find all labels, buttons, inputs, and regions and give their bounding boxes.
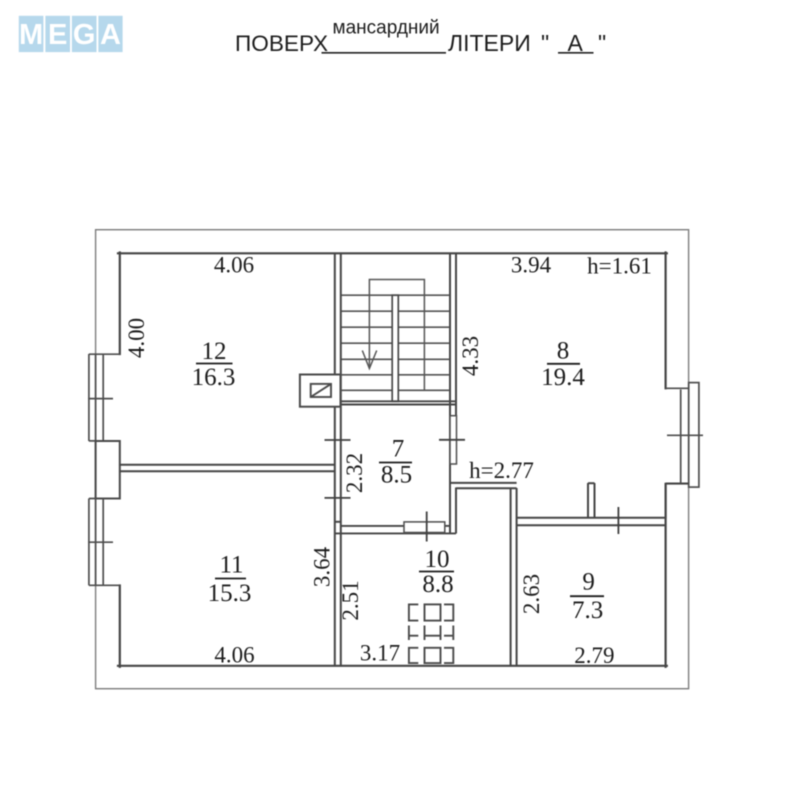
svg-text:3.64: 3.64 bbox=[310, 546, 335, 587]
svg-text:G: G bbox=[73, 19, 96, 51]
svg-text:ПОВЕРХ: ПОВЕРХ bbox=[235, 31, 328, 56]
svg-text:19.4: 19.4 bbox=[541, 364, 585, 391]
svg-text:8: 8 bbox=[557, 338, 570, 365]
svg-text:h=1.61: h=1.61 bbox=[587, 254, 652, 279]
svg-text:4.33: 4.33 bbox=[458, 336, 483, 376]
svg-text:4.06: 4.06 bbox=[214, 253, 254, 278]
svg-text:ЛІТЕРИ: ЛІТЕРИ bbox=[448, 30, 531, 56]
svg-text:10: 10 bbox=[425, 546, 450, 573]
svg-text:": " bbox=[598, 30, 606, 56]
svg-text:7.3: 7.3 bbox=[572, 597, 603, 624]
svg-text:4.06: 4.06 bbox=[214, 643, 254, 668]
svg-text:11: 11 bbox=[219, 552, 243, 579]
svg-text:8.8: 8.8 bbox=[422, 571, 453, 598]
svg-text:2.51: 2.51 bbox=[338, 580, 363, 620]
svg-text:7: 7 bbox=[392, 436, 405, 463]
svg-text:2.63: 2.63 bbox=[519, 574, 544, 614]
svg-text:3.17: 3.17 bbox=[360, 641, 400, 666]
svg-text:2.32: 2.32 bbox=[342, 453, 367, 493]
svg-text:3.94: 3.94 bbox=[511, 253, 552, 278]
svg-text:9: 9 bbox=[582, 569, 595, 596]
svg-text:E: E bbox=[48, 19, 67, 51]
svg-text:M: M bbox=[19, 19, 43, 51]
svg-text:A: A bbox=[100, 19, 121, 51]
svg-text:2.79: 2.79 bbox=[574, 643, 614, 668]
svg-text:8.5: 8.5 bbox=[381, 462, 412, 489]
svg-text:h=2.77: h=2.77 bbox=[469, 458, 534, 483]
svg-text:": " bbox=[541, 30, 549, 56]
svg-text:16.3: 16.3 bbox=[192, 364, 236, 391]
svg-text:15.3: 15.3 bbox=[208, 580, 252, 607]
svg-text:12: 12 bbox=[202, 338, 227, 365]
svg-text:мансардний: мансардний bbox=[333, 18, 440, 39]
svg-text:4.00: 4.00 bbox=[124, 318, 149, 358]
